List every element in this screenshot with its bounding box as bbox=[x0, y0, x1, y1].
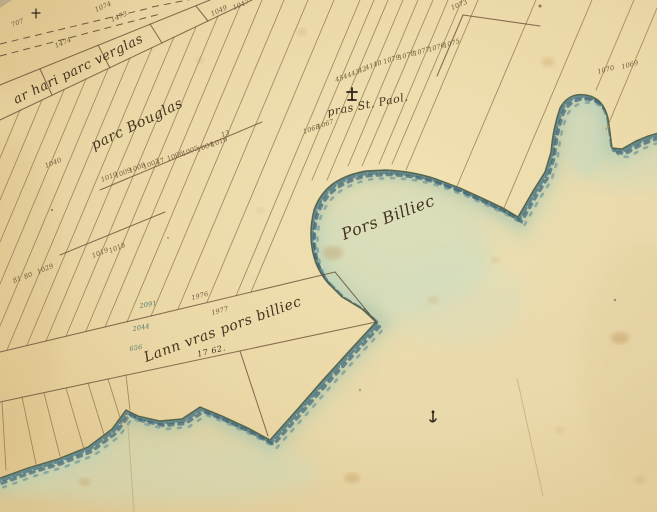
cove-wash-outflow bbox=[385, 255, 525, 345]
cadastral-map-svg: ar hari parc verglasparc Bouglaspras St.… bbox=[0, 0, 657, 512]
map-canvas: ar hari parc verglasparc Bouglaspras St.… bbox=[0, 0, 657, 512]
